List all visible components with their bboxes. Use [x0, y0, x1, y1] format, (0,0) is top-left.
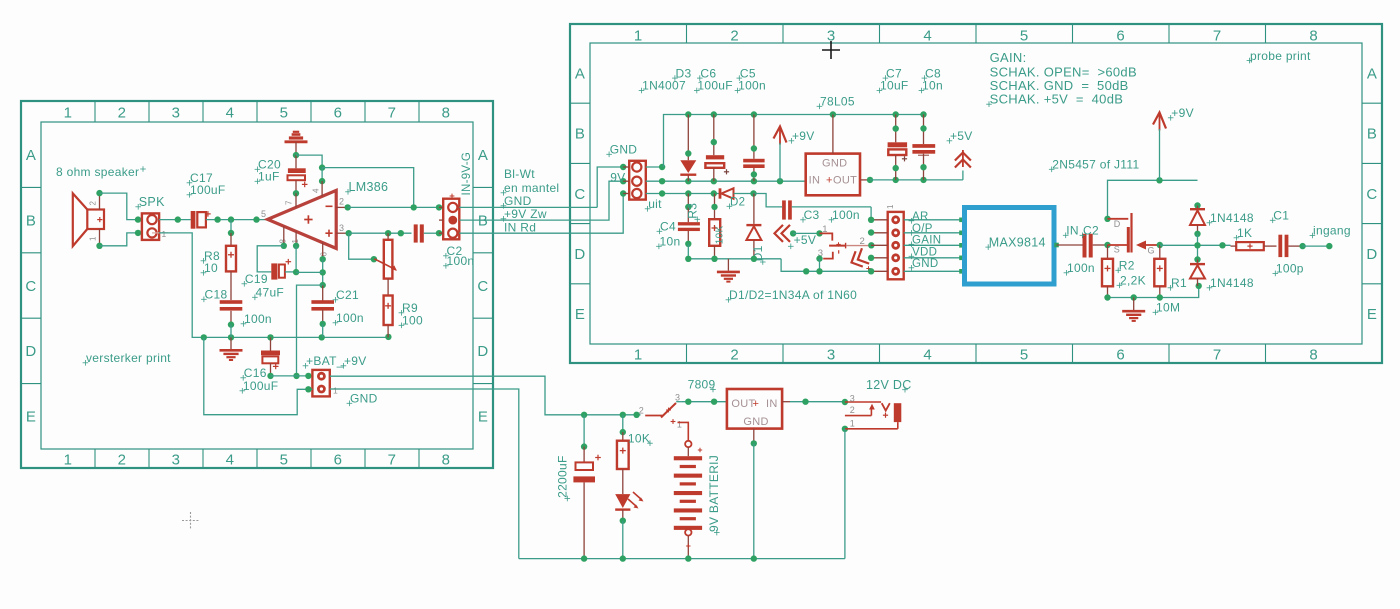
- svg-text:SCHAK. +5V = 40dB: SCHAK. +5V = 40dB: [990, 91, 1124, 106]
- svg-text:4: 4: [923, 28, 932, 45]
- svg-text:8: 8: [1309, 347, 1318, 364]
- svg-text:100n: 100n: [447, 254, 475, 268]
- svg-text:D: D: [25, 343, 36, 360]
- svg-text:A: A: [575, 65, 585, 82]
- svg-text:1: 1: [162, 229, 167, 239]
- svg-text:IN-9V-G: IN-9V-G: [461, 152, 473, 196]
- svg-text:en mantel: en mantel: [504, 181, 559, 195]
- svg-text:3: 3: [172, 452, 181, 469]
- svg-text:VDD: VDD: [912, 247, 937, 259]
- svg-text:1N4148: 1N4148: [1210, 276, 1254, 290]
- svg-text:10uF: 10uF: [880, 79, 909, 93]
- svg-text:6: 6: [1116, 28, 1125, 45]
- svg-text:GND: GND: [350, 392, 378, 406]
- svg-text:10K: 10K: [628, 431, 650, 445]
- svg-text:1: 1: [89, 236, 98, 241]
- svg-text:probe print: probe print: [1250, 49, 1311, 63]
- svg-text:C3: C3: [804, 208, 820, 222]
- svg-text:C: C: [1366, 186, 1377, 203]
- svg-text:8: 8: [442, 452, 451, 469]
- svg-text:8: 8: [442, 105, 451, 122]
- svg-text:+9V Zw: +9V Zw: [504, 207, 547, 221]
- svg-text:R1: R1: [1171, 276, 1187, 290]
- svg-text:4: 4: [226, 105, 235, 122]
- svg-text:2N5457 of J111: 2N5457 of J111: [1052, 158, 1139, 172]
- svg-text:E: E: [1367, 306, 1377, 323]
- svg-text:9V BATTERIJ: 9V BATTERIJ: [707, 455, 721, 532]
- svg-text:100p: 100p: [1276, 262, 1304, 276]
- svg-text:Bl-Wt: Bl-Wt: [504, 167, 535, 181]
- svg-text:+5V: +5V: [950, 129, 973, 143]
- svg-text:6: 6: [320, 252, 329, 257]
- svg-text:C: C: [25, 278, 36, 295]
- svg-text:2200uF: 2200uF: [556, 455, 570, 498]
- svg-text:+: +: [826, 175, 833, 187]
- svg-text:C19: C19: [245, 272, 268, 286]
- svg-text:2: 2: [639, 406, 644, 416]
- svg-text:100n: 100n: [738, 79, 766, 93]
- svg-text:C1: C1: [1273, 209, 1289, 223]
- svg-text:7: 7: [1213, 28, 1222, 45]
- svg-text:10n: 10n: [922, 79, 943, 93]
- svg-text:C18: C18: [205, 288, 228, 302]
- svg-text:1: 1: [677, 419, 682, 429]
- svg-text:+9V: +9V: [1171, 106, 1194, 120]
- svg-text:C: C: [477, 278, 488, 295]
- svg-text:5: 5: [280, 452, 289, 469]
- svg-text:D: D: [574, 246, 585, 263]
- svg-text:5: 5: [1020, 347, 1029, 364]
- svg-text:ingang: ingang: [1313, 224, 1351, 238]
- svg-text:2: 2: [118, 452, 127, 469]
- svg-text:versterker print: versterker print: [86, 351, 171, 365]
- svg-text:1: 1: [886, 204, 895, 209]
- svg-text:1: 1: [64, 105, 73, 122]
- svg-text:D2: D2: [730, 197, 745, 209]
- svg-text:6: 6: [1116, 347, 1125, 364]
- svg-text:GND: GND: [743, 416, 768, 428]
- svg-text:OUT: OUT: [833, 175, 857, 187]
- svg-text:AR: AR: [912, 211, 929, 223]
- svg-text:A: A: [26, 147, 36, 164]
- svg-text:2: 2: [89, 201, 98, 206]
- svg-text:7: 7: [388, 105, 397, 122]
- svg-text:4: 4: [226, 452, 235, 469]
- svg-text:C: C: [574, 186, 585, 203]
- svg-text:1: 1: [333, 386, 338, 396]
- svg-text:GAIN:: GAIN:: [990, 50, 1027, 65]
- svg-text:A: A: [478, 147, 488, 164]
- svg-text:IN: IN: [766, 398, 778, 410]
- svg-text:2: 2: [339, 197, 344, 207]
- svg-text:8: 8: [1309, 28, 1318, 45]
- svg-text:+BAT_: +BAT_: [306, 354, 344, 368]
- svg-text:+9V: +9V: [344, 354, 367, 368]
- svg-text:E: E: [478, 409, 488, 426]
- svg-text:100uF: 100uF: [190, 183, 226, 197]
- svg-text:MAX9814: MAX9814: [989, 235, 1046, 249]
- svg-text:GND: GND: [610, 143, 638, 157]
- svg-text:7: 7: [285, 200, 294, 205]
- svg-text:D: D: [1114, 219, 1121, 229]
- svg-text:2: 2: [730, 347, 739, 364]
- svg-text:SPK: SPK: [139, 195, 165, 209]
- svg-text:100uF: 100uF: [697, 79, 733, 93]
- svg-text:100n: 100n: [1067, 261, 1095, 275]
- svg-text:3: 3: [172, 105, 181, 122]
- svg-text:3: 3: [827, 347, 836, 364]
- svg-text:LM386: LM386: [349, 180, 389, 194]
- svg-text:10K: 10K: [715, 225, 726, 244]
- svg-text:5: 5: [1020, 28, 1029, 45]
- svg-text:47uF: 47uF: [256, 286, 285, 300]
- svg-text:5: 5: [261, 209, 266, 219]
- svg-text:2: 2: [118, 105, 127, 122]
- svg-text:2: 2: [730, 28, 739, 45]
- svg-text:10n: 10n: [660, 235, 681, 249]
- svg-text:2,2K: 2,2K: [1120, 274, 1146, 288]
- svg-text:5: 5: [280, 105, 289, 122]
- svg-text:IN Rd: IN Rd: [504, 221, 536, 235]
- svg-text:2: 2: [850, 405, 855, 415]
- svg-text:3: 3: [850, 393, 855, 403]
- svg-text:3: 3: [675, 392, 680, 402]
- svg-text:C16: C16: [244, 366, 267, 380]
- svg-text:78L05: 78L05: [820, 95, 855, 109]
- svg-text:D1/D2=1N34A of 1N60: D1/D2=1N34A of 1N60: [729, 288, 857, 302]
- svg-text:3: 3: [339, 223, 344, 233]
- svg-text:GND: GND: [822, 158, 847, 170]
- svg-text:G: G: [1148, 246, 1155, 256]
- svg-text:GND: GND: [912, 258, 938, 270]
- svg-text:B: B: [1367, 126, 1377, 143]
- svg-text:O/P: O/P: [912, 223, 933, 235]
- svg-text:E: E: [26, 409, 36, 426]
- svg-text:100n: 100n: [336, 311, 364, 325]
- svg-text:D: D: [1366, 246, 1377, 263]
- svg-text:R3: R3: [686, 203, 700, 219]
- svg-text:100n: 100n: [244, 312, 272, 326]
- svg-text:1: 1: [634, 28, 643, 45]
- svg-text:7: 7: [388, 452, 397, 469]
- svg-text:1: 1: [634, 347, 643, 364]
- svg-text:B: B: [575, 126, 585, 143]
- svg-text:100uF: 100uF: [243, 379, 279, 393]
- svg-text:E: E: [575, 306, 585, 323]
- svg-text:1N4148: 1N4148: [1210, 211, 1254, 225]
- svg-text:6: 6: [334, 105, 343, 122]
- svg-text:4: 4: [312, 188, 321, 193]
- svg-text:4: 4: [923, 347, 932, 364]
- svg-text:100n: 100n: [832, 208, 860, 222]
- svg-text:GND: GND: [504, 194, 532, 208]
- svg-text:9V: 9V: [610, 171, 625, 185]
- svg-text:10M: 10M: [1156, 301, 1180, 315]
- svg-text:1uF: 1uF: [258, 170, 280, 184]
- svg-text:IN: IN: [809, 175, 821, 187]
- svg-text:1: 1: [64, 452, 73, 469]
- svg-text:1K: 1K: [1237, 226, 1252, 240]
- svg-text:6: 6: [334, 452, 343, 469]
- svg-text:100: 100: [402, 314, 423, 328]
- svg-text:R2: R2: [1119, 259, 1135, 273]
- svg-text:+5V: +5V: [794, 233, 817, 247]
- svg-text:GAIN: GAIN: [912, 235, 941, 247]
- svg-text:7: 7: [1213, 347, 1222, 364]
- svg-text:8 ohm speaker: 8 ohm speaker: [56, 165, 139, 179]
- svg-text:C2: C2: [1083, 224, 1099, 238]
- svg-text:C4: C4: [660, 220, 676, 234]
- svg-text:B: B: [478, 212, 488, 229]
- svg-text:A: A: [1367, 65, 1377, 82]
- svg-text:B: B: [26, 212, 36, 229]
- svg-text:C21: C21: [336, 288, 359, 302]
- svg-text:1N4007: 1N4007: [642, 79, 686, 93]
- svg-text:S: S: [1114, 245, 1120, 255]
- svg-text:1: 1: [850, 419, 855, 429]
- svg-text:+9V: +9V: [792, 129, 815, 143]
- svg-text:D: D: [477, 343, 488, 360]
- svg-text:+: +: [753, 398, 760, 410]
